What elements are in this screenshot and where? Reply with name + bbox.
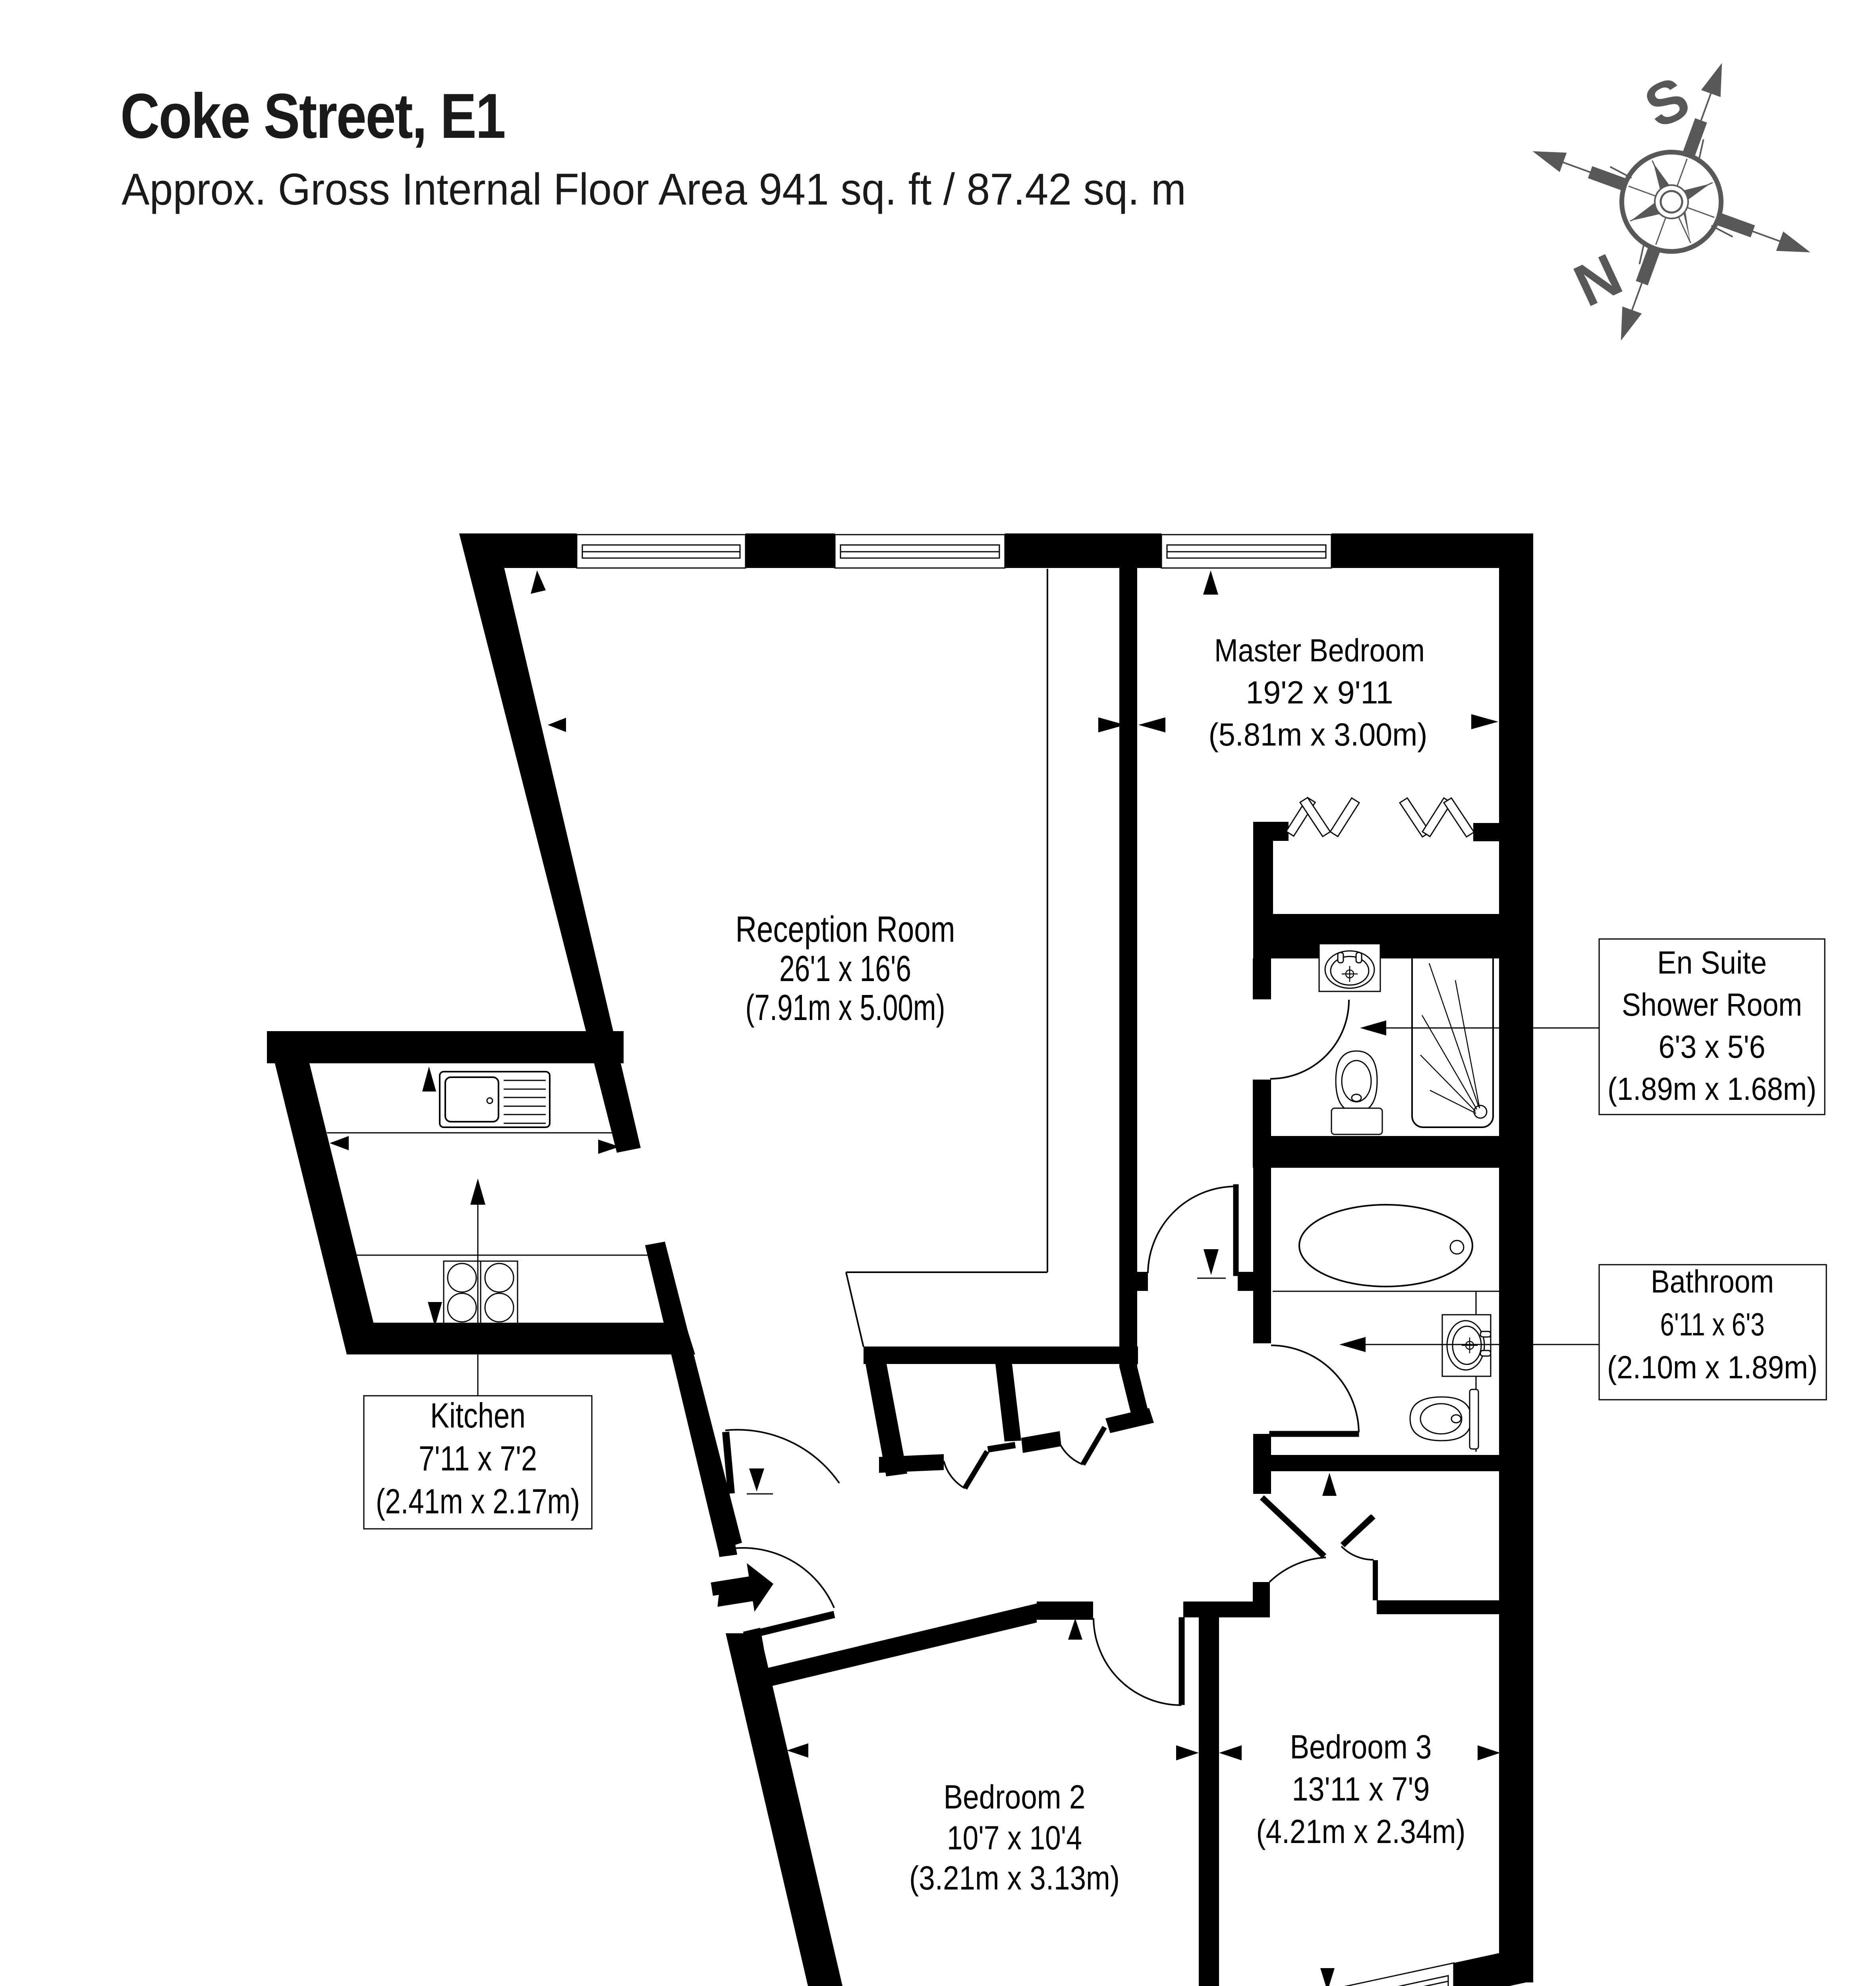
svg-text:Shower Room: Shower Room — [1622, 987, 1802, 1023]
svg-text:19'2 x 9'11: 19'2 x 9'11 — [1246, 675, 1393, 711]
svg-text:Master Bedroom: Master Bedroom — [1214, 633, 1425, 668]
svg-text:Bathroom: Bathroom — [1651, 1264, 1774, 1300]
svg-text:10'7 x 10'4: 10'7 x 10'4 — [947, 1819, 1082, 1857]
svg-text:(2.41m x 2.17m): (2.41m x 2.17m) — [376, 1482, 580, 1521]
svg-text:(7.91m x 5.00m): (7.91m x 5.00m) — [746, 987, 945, 1028]
svg-text:Bedroom 2: Bedroom 2 — [944, 1778, 1086, 1816]
svg-text:Bedroom 3: Bedroom 3 — [1290, 1728, 1432, 1766]
svg-text:Approx. Gross Internal Floor A: Approx. Gross Internal Floor Area 941 sq… — [122, 164, 1186, 214]
svg-text:6'11 x 6'3: 6'11 x 6'3 — [1660, 1307, 1765, 1343]
svg-text:Coke Street, E1: Coke Street, E1 — [120, 80, 505, 151]
svg-text:Kitchen: Kitchen — [430, 1396, 526, 1435]
svg-text:(1.89m x 1.68m): (1.89m x 1.68m) — [1607, 1071, 1816, 1107]
svg-text:(3.21m x 3.13m): (3.21m x 3.13m) — [909, 1859, 1120, 1897]
svg-text:7'11 x 7'2: 7'11 x 7'2 — [419, 1439, 537, 1478]
svg-text:En Suite: En Suite — [1657, 945, 1767, 981]
svg-text:6'3 x 5'6: 6'3 x 5'6 — [1659, 1029, 1766, 1065]
svg-text:13'11 x 7'9: 13'11 x 7'9 — [1292, 1770, 1430, 1808]
svg-text:(2.10m x 1.89m): (2.10m x 1.89m) — [1607, 1350, 1818, 1385]
svg-text:(5.81m x 3.00m): (5.81m x 3.00m) — [1209, 717, 1428, 753]
svg-text:(4.21m x 2.34m): (4.21m x 2.34m) — [1256, 1813, 1466, 1850]
svg-text:26'1 x 16'6: 26'1 x 16'6 — [779, 949, 911, 989]
svg-text:Reception Room: Reception Room — [736, 909, 955, 950]
